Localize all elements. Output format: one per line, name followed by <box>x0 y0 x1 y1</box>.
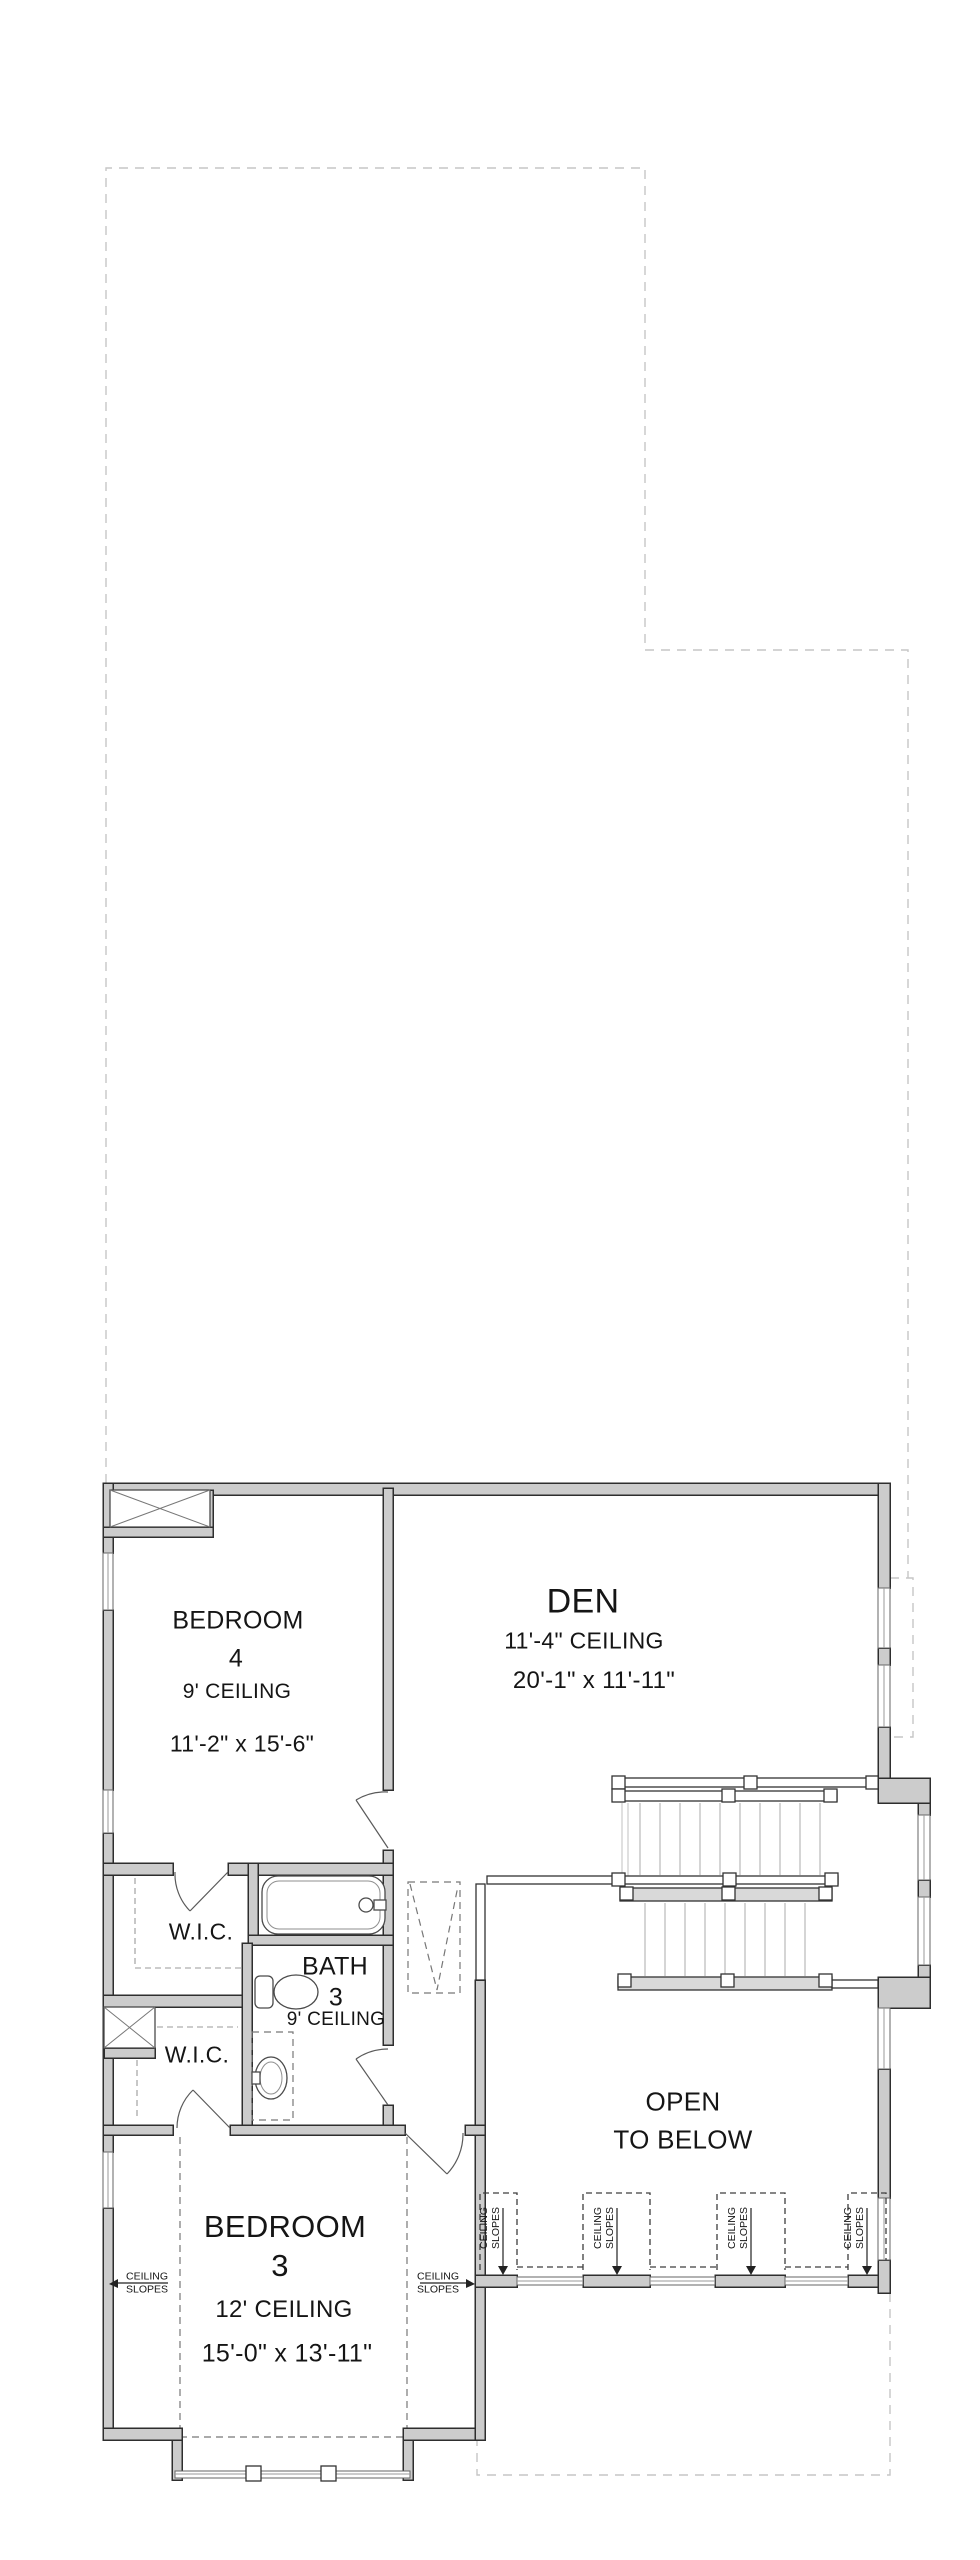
den-ceiling: 11'-4" CEILING <box>504 1628 664 1655</box>
bedroom4-name: BEDROOM <box>172 1607 303 1636</box>
dormer3-line1: CEILING <box>726 2207 738 2249</box>
bath3-ceiling: 9' CEILING <box>287 2009 386 2031</box>
ceiling-slopes-dormer-1: CEILING SLOPES <box>478 2207 502 2249</box>
lot-outline-dashed <box>106 168 913 2475</box>
bedroom3-number: 3 <box>271 2248 289 2284</box>
ceiling-slopes-left-line2: SLOPES <box>126 2284 168 2297</box>
bath3-name: BATH <box>302 1953 368 1982</box>
dormer2-line2: SLOPES <box>604 2207 616 2249</box>
doors <box>175 1792 463 2174</box>
open-to-below-line1: OPEN <box>646 2087 721 2118</box>
ceiling-slopes-left: CEILING SLOPES <box>126 2271 168 2298</box>
ceiling-slopes-right-line1: CEILING <box>417 2271 459 2284</box>
dormer2-line1: CEILING <box>592 2207 604 2249</box>
attic-mechanical-dashed-box <box>408 1882 460 1993</box>
ceiling-tray-dashed <box>180 2137 407 2437</box>
floor-plan-drawing <box>0 0 980 2560</box>
bedroom3-name: BEDROOM <box>204 2209 366 2245</box>
dormer1-line1: CEILING <box>478 2207 490 2249</box>
dormer4-line2: SLOPES <box>854 2207 866 2249</box>
ceiling-slopes-right: CEILING SLOPES <box>417 2271 459 2298</box>
dormer-dashed-boxes <box>480 2193 886 2270</box>
dormer1-line2: SLOPES <box>490 2207 502 2249</box>
stair-treads-upper <box>640 1803 820 1875</box>
bedroom4-number: 4 <box>229 1645 243 1674</box>
ceiling-slopes-right-line2: SLOPES <box>417 2284 459 2297</box>
staircase-icon <box>476 1776 880 1990</box>
bedroom3-dims: 15'-0" x 13'-11" <box>202 2340 373 2369</box>
stair-railings <box>476 1776 880 1990</box>
ceiling-slopes-dormer-4: CEILING SLOPES <box>842 2207 866 2249</box>
ceiling-slopes-left-line1: CEILING <box>126 2271 168 2284</box>
dormer4-line1: CEILING <box>842 2207 854 2249</box>
ceiling-slopes-dormer-3: CEILING SLOPES <box>726 2207 750 2249</box>
bedroom3-ceiling: 12' CEILING <box>215 2296 352 2324</box>
wic-lower-label: W.I.C. <box>165 2042 229 2069</box>
den-dims: 20'-1" x 11'-11" <box>513 1667 675 1695</box>
stair-treads-lower <box>645 1903 805 1976</box>
dormer3-line2: SLOPES <box>738 2207 750 2249</box>
x-chase-icon <box>104 1490 210 2048</box>
open-to-below-line2: TO BELOW <box>613 2125 752 2156</box>
floor-plan: BEDROOM 4 9' CEILING 11'-2" x 15'-6" DEN… <box>0 0 980 2560</box>
bedroom4-ceiling: 9' CEILING <box>183 1680 292 1704</box>
den-name: DEN <box>547 1583 620 1622</box>
wic-upper-label: W.I.C. <box>169 1919 233 1946</box>
bedroom4-dims: 11'-2" x 15'-6" <box>170 1731 314 1758</box>
bathtub-icon <box>262 1876 386 1934</box>
ceiling-slopes-dormer-2: CEILING SLOPES <box>592 2207 616 2249</box>
sink-icon <box>252 2032 293 2120</box>
